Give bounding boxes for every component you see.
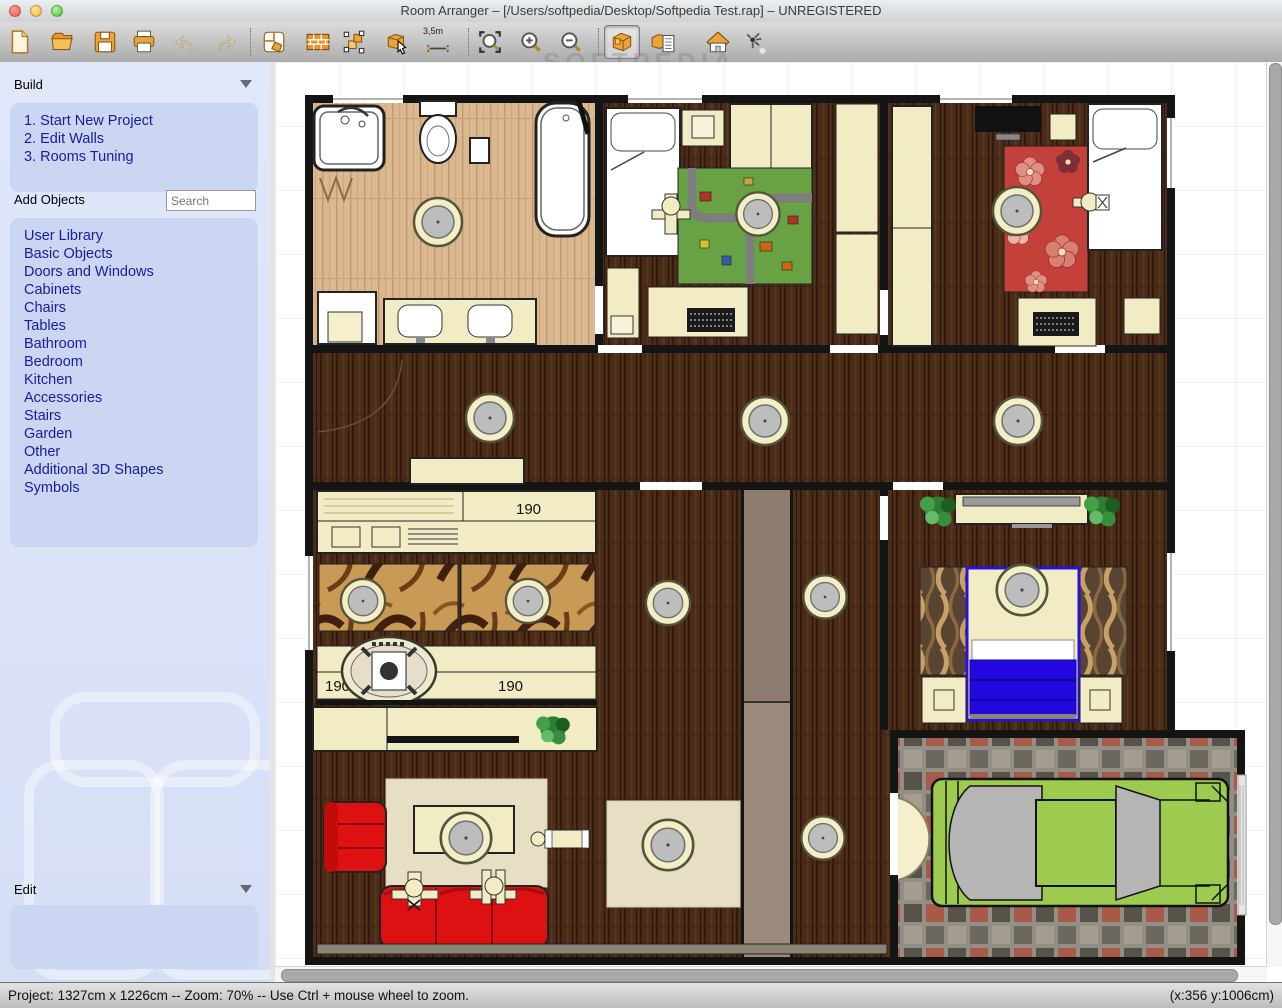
- select-objects-button[interactable]: [336, 25, 372, 59]
- category-tables[interactable]: Tables: [10, 317, 258, 335]
- category-cabinets[interactable]: Cabinets: [10, 281, 258, 299]
- edit-walls-button[interactable]: [300, 25, 336, 59]
- light-settings-button[interactable]: [739, 25, 775, 59]
- category-additional-3d-shapes[interactable]: Additional 3D Shapes: [10, 461, 258, 479]
- toolbar: 3,5m SOFTPEDIA www.softpedia.com: [0, 22, 1282, 63]
- build-step-start-new-project[interactable]: 1. Start New Project: [10, 112, 258, 130]
- status-bar: Project: 1327cm x 1226cm -- Zoom: 70% --…: [0, 982, 1282, 1008]
- ceiling-lamp: [643, 820, 693, 870]
- status-project-info: Project: 1327cm x 1226cm -- Zoom: 70% --…: [8, 988, 469, 1003]
- edit-rooms-button[interactable]: [256, 25, 292, 59]
- objects-button[interactable]: [604, 25, 640, 59]
- zebra-rug: [920, 567, 966, 675]
- ceiling-lamp: [506, 579, 550, 623]
- cabinet: [1124, 298, 1160, 334]
- house-3d-icon: [705, 29, 731, 55]
- ceiling-lamp: [801, 816, 844, 859]
- horizontal-scrollbar[interactable]: [275, 966, 1267, 982]
- ceiling-lamp: [441, 813, 491, 863]
- category-user-library[interactable]: User Library: [10, 227, 258, 245]
- room-plan-icon: [261, 29, 287, 55]
- sideboard: [410, 458, 524, 484]
- zoom-to-fit-button[interactable]: [472, 25, 508, 59]
- car: [932, 779, 1228, 906]
- object-box-icon: [609, 29, 635, 55]
- category-accessories[interactable]: Accessories: [10, 389, 258, 407]
- add-objects-panel: User Library Basic Objects Doors and Win…: [10, 218, 258, 547]
- ceiling-lamp: [803, 575, 846, 618]
- category-symbols[interactable]: Symbols: [10, 479, 258, 497]
- build-step-edit-walls[interactable]: 2. Edit Walls: [10, 130, 258, 148]
- build-panel-title: Build: [14, 77, 43, 92]
- category-kitchen[interactable]: Kitchen: [10, 371, 258, 389]
- measure-button[interactable]: 3,5m: [420, 25, 456, 59]
- light-sparkle-icon: [744, 29, 770, 55]
- category-chairs[interactable]: Chairs: [10, 299, 258, 317]
- insert-object-button[interactable]: [379, 25, 415, 59]
- window-sill: [317, 944, 887, 954]
- view-3d-button[interactable]: [700, 25, 736, 59]
- ceiling-lamp: [414, 198, 462, 246]
- box-cursor-icon: [384, 29, 410, 55]
- edit-panel-title: Edit: [14, 882, 36, 897]
- traffic-lights: [9, 5, 63, 17]
- nightstand: [922, 677, 966, 723]
- closet: [836, 234, 878, 334]
- bathtub: [536, 103, 589, 236]
- build-collapse-button[interactable]: [240, 80, 252, 88]
- undo-icon: [172, 29, 198, 55]
- save-floppy-icon: [92, 29, 118, 55]
- closet: [836, 104, 878, 232]
- edit-collapse-button[interactable]: [240, 885, 252, 893]
- tv-dresser: [975, 106, 1041, 132]
- search-input[interactable]: [166, 190, 256, 211]
- nightstand: [1050, 114, 1076, 140]
- redo-icon: [213, 29, 239, 55]
- open-button[interactable]: [44, 25, 80, 59]
- title-bar: Room Arranger – [/Users/softpedia/Deskto…: [0, 0, 1282, 22]
- cistern: [470, 138, 489, 163]
- toilet: [420, 101, 456, 116]
- toolbar-separator: [468, 28, 469, 56]
- ceiling-lamp: [741, 397, 789, 445]
- open-folder-icon: [49, 29, 75, 55]
- category-other[interactable]: Other: [10, 443, 258, 461]
- window-title: Room Arranger – [/Users/softpedia/Deskto…: [0, 0, 1282, 22]
- category-stairs[interactable]: Stairs: [10, 407, 258, 425]
- brick-wall-icon: [305, 29, 331, 55]
- vertical-scroll-thumb[interactable]: [1269, 63, 1282, 925]
- build-step-rooms-tuning[interactable]: 3. Rooms Tuning: [10, 148, 258, 166]
- floor-plan: 190 190 190: [275, 62, 1282, 982]
- swirl-rug: [319, 564, 458, 631]
- zoom-fit-icon: [477, 29, 503, 55]
- save-button[interactable]: [87, 25, 123, 59]
- selection-handles-icon: [341, 29, 367, 55]
- new-document-icon: [7, 29, 33, 55]
- toolbar-separator: [250, 28, 251, 56]
- print-icon: [131, 29, 157, 55]
- build-panel: 1. Start New Project 2. Edit Walls 3. Ro…: [10, 103, 258, 192]
- category-doors-and-windows[interactable]: Doors and Windows: [10, 263, 258, 281]
- undo-button[interactable]: [167, 25, 203, 59]
- ceiling-lamp: [993, 187, 1041, 235]
- horizontal-scroll-thumb[interactable]: [281, 969, 1238, 982]
- zoom-out-button[interactable]: [553, 25, 589, 59]
- measure-label: 3,5m: [423, 26, 443, 36]
- new-button[interactable]: [2, 25, 38, 59]
- category-garden[interactable]: Garden: [10, 425, 258, 443]
- ceiling-lamp: [994, 397, 1042, 445]
- edit-panel: [10, 905, 258, 969]
- dining-table: [342, 637, 436, 705]
- zoom-out-icon: [558, 29, 584, 55]
- ceiling-lamp: [997, 565, 1047, 615]
- category-bathroom[interactable]: Bathroom: [10, 335, 258, 353]
- zebra-rug: [1080, 567, 1127, 675]
- minimize-button[interactable]: [30, 5, 42, 17]
- corridor-stairs: [741, 490, 793, 957]
- redo-button[interactable]: [208, 25, 244, 59]
- category-bedroom[interactable]: Bedroom: [10, 353, 258, 371]
- nightstand: [1080, 677, 1122, 723]
- print-button[interactable]: [126, 25, 162, 59]
- zoom-in-button[interactable]: [513, 25, 549, 59]
- bench-figure: [531, 830, 589, 848]
- dim-label-counter: 190: [516, 501, 541, 518]
- zoom-in-icon: [518, 29, 544, 55]
- close-button[interactable]: [9, 5, 21, 17]
- ceiling-lamp: [466, 394, 514, 442]
- toolbar-separator: [598, 28, 599, 56]
- ceiling-lamp: [341, 579, 385, 623]
- dim-label-right: 190: [498, 678, 523, 695]
- ceiling-lamp: [736, 192, 779, 235]
- armchair: [324, 802, 386, 872]
- category-basic-objects[interactable]: Basic Objects: [10, 245, 258, 263]
- zoom-window-button[interactable]: [51, 5, 63, 17]
- garage[interactable]: [898, 738, 1237, 957]
- wardrobe: [892, 106, 932, 346]
- status-cursor-coords: (x:356 y:1006cm): [1170, 988, 1274, 1003]
- box-list-icon: [650, 29, 676, 55]
- add-objects-label: Add Objects: [14, 192, 85, 207]
- ceiling-lamp: [646, 581, 690, 625]
- sidebar: Build 1. Start New Project 2. Edit Walls…: [0, 62, 275, 982]
- vertical-scrollbar[interactable]: [1266, 62, 1282, 967]
- plan-canvas[interactable]: 190 190 190: [275, 62, 1282, 982]
- object-properties-button[interactable]: [645, 25, 681, 59]
